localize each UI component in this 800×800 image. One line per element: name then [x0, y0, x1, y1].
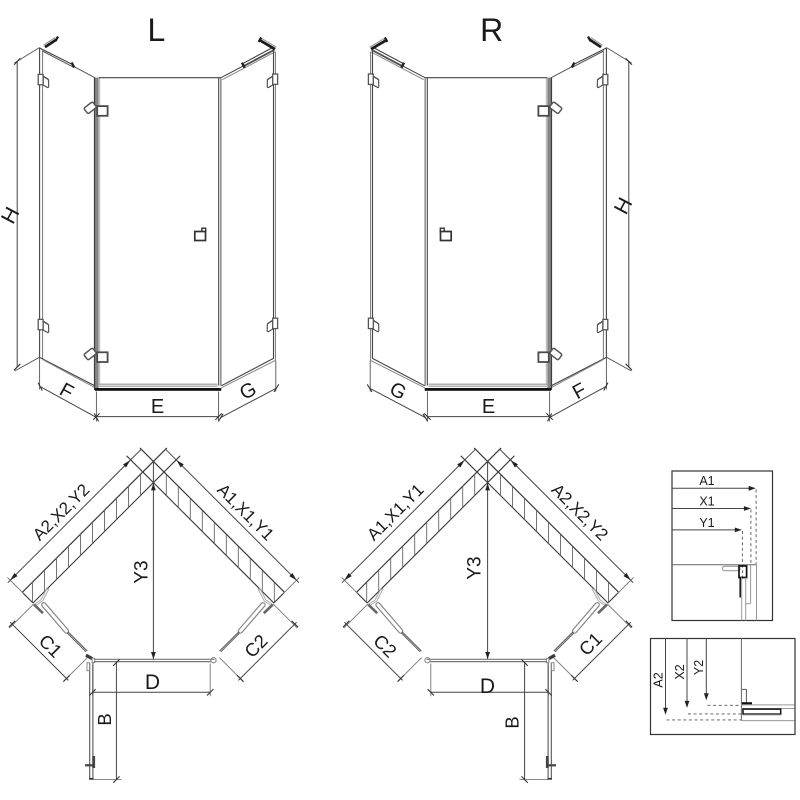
svg-text:B: B: [501, 716, 522, 728]
svg-text:R: R: [480, 12, 503, 48]
svg-text:L: L: [148, 12, 166, 48]
svg-text:Y2: Y2: [692, 660, 706, 675]
svg-text:B: B: [94, 713, 115, 725]
svg-text:D: D: [480, 675, 495, 698]
svg-text:Y3: Y3: [465, 556, 486, 579]
svg-text:X1: X1: [699, 495, 714, 509]
svg-text:A1: A1: [699, 474, 714, 488]
svg-text:Y1: Y1: [699, 516, 714, 530]
svg-text:E: E: [151, 396, 164, 418]
svg-text:A2: A2: [651, 672, 665, 687]
svg-text:D: D: [145, 671, 160, 694]
svg-text:X2: X2: [673, 664, 687, 679]
svg-text:E: E: [482, 396, 495, 418]
svg-text:Y3: Y3: [132, 560, 153, 583]
